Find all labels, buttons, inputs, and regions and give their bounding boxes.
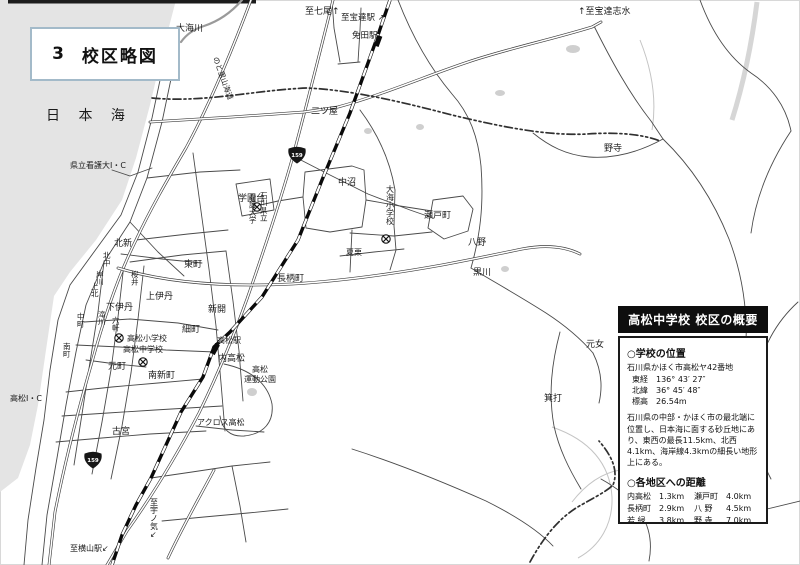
road [111,266,144,479]
distance-value: 4.5km [726,503,759,515]
map-label-minouchi: 箕打 [544,392,562,404]
map-label-to-unoke: 至宇ノ気↙ [150,498,158,539]
map-label-hosomachi: 細町 [182,323,200,335]
map-label-motome: 元女 [586,338,604,350]
distance-name: 若 緑 [627,515,657,524]
map-label-furumiya: 古宮 [112,425,130,437]
terrain-band [732,2,757,120]
omigawa-river [181,0,242,42]
map-label-shimoidan: 下伊丹 [106,301,133,313]
map-label-route-noto-satoyama-kaido: のと里山海道 [211,55,236,101]
distance-value: 1.3km [659,491,692,503]
road [162,509,288,521]
coordinate-row: 東経136° 43′ 27″ [627,375,759,386]
scan-artifact [8,0,256,4]
map-label-takamatsu-elementary: 高松小学校 [127,333,167,343]
map-label-minamishinmachi: 南新町 [148,369,175,381]
map-label-to-hodatsu-station: 至宝達駅 ↗ [341,12,385,23]
map-label-kamiidan: 上伊丹 [146,290,173,302]
map-label-takamatsu-junior-high: 高松中学校 [123,344,163,354]
road [471,268,593,353]
map-label-takigawa: 滝川 [98,309,106,327]
road [130,222,184,276]
info-box-header: 高松中学校 校区の概要 [618,306,768,333]
location-section-title: ○学校の位置 [627,345,759,360]
map-label-kitanaka: 北中 [103,251,111,268]
distance-name: 野 寺 [694,515,724,524]
terrain-contour [640,40,654,130]
distance-value: 7.0km [726,515,759,524]
distance-table: 内高松1.3km瀬戸町4.0km長柄町2.9km八 野4.5km若 緑3.8km… [627,491,759,524]
map-title-number: 3 [52,44,66,64]
school-address: 石川県かほく市高松ヤ42番地 [627,362,759,373]
map-label-shinkai: 新開 [208,303,226,315]
road [136,230,228,240]
road [398,0,482,268]
map-label-setomachi: 瀬戸町 [424,209,451,221]
road [232,466,246,542]
map-label-across-takamatsu: アクロス高松 [197,417,245,427]
road [350,232,432,236]
distance-name: 長柄町 [627,503,657,515]
map-label-rokken: 六軒 [112,315,120,333]
route-159-shield-number: 159 [291,153,303,159]
map-label-takamatsu-sports-park-1: 高松 [252,364,268,374]
road [338,62,360,64]
terrain-patch [247,388,257,396]
coordinate-list: 東経136° 43′ 27″北緯36° 45′ 48″標高26.54m [627,375,759,407]
map-label-to-hodatsushimizu: ↑至宝達志水 [578,5,631,17]
map-label-higashimachi: 東町 [184,258,202,270]
road [352,449,553,546]
map-label-kango-daigaku: 看護大学 [249,193,257,225]
map-label-nakanuma: 中沼 [338,176,356,188]
map-label-takamatsu-sports-park-2: 運動公園 [244,375,276,384]
map-label-takamatsu-station: 高松駅 [217,335,241,345]
map-title-text: 校区略図 [82,42,158,67]
major-road [168,470,214,558]
map-label-menden-station: 免田駅 [352,30,378,41]
map-label-river-omigawa: 大海川 [176,22,203,34]
map-label-hachino: 八野 [468,237,486,248]
info-box-body: ○学校の位置 石川県かほく市高松ヤ42番地 東経136° 43′ 27″北緯36… [618,336,768,524]
school-info-box: 高松中学校 校区の概要 ○学校の位置 石川県かほく市高松ヤ42番地 東経136°… [618,306,768,524]
map-label-kishikawa: 岸川 [96,270,104,287]
distance-name: 瀬戸町 [694,491,724,503]
map-label-uchitakamatsu: 内高松 [218,352,245,364]
map-label-kitashin: 北新 [114,237,132,249]
distance-section-title: ○各地区への距離 [627,474,759,489]
terrain-patch [416,124,424,130]
map-label-nakamachi: 中町 [77,311,85,329]
map-label-to-nanao: 至七尾↑ [305,6,340,17]
coordinate-row: 標高26.54m [627,397,759,408]
road [551,332,581,489]
terrain-patch [495,90,505,96]
map-label-omi-elementary: 大海小学校 [386,184,394,226]
map-label-kurokawa: 黒川 [473,267,491,278]
map-label-motomachi: 元町 [108,362,126,372]
route-159-shield-number: 159 [87,458,99,464]
road [593,353,601,403]
road [360,110,395,190]
page: 159159日 本 海大海川のと里山海道至七尾↑至宝達駅 ↗免田駅↑至宝達志水二… [0,0,800,565]
map-label-nagaramachi: 長柄町 [277,272,304,284]
school-description: 石川県の中部・かほく市の最北端に位置し、日本海に面する砂丘地にあり、東西の最長1… [627,412,759,468]
distance-name: 内高松 [627,491,657,503]
terrain-patch [364,128,372,134]
terrain-patch [566,45,580,53]
distance-value: 3.8km [659,515,692,524]
map-label-sea-nihonkai: 日 本 海 [46,108,132,124]
distance-value: 4.0km [726,491,759,503]
map-label-sakurai: 桜井 [131,269,139,287]
terrain-patch [501,266,509,272]
map-label-nodera: 野寺 [604,143,622,154]
map-label-natsuguri: 夏栗 [346,248,362,257]
map-label-kenritsu-kango-dai-ic: 県立看護大I・C [70,160,126,170]
road [303,166,366,232]
distance-name: 八 野 [694,503,724,515]
distance-value: 2.9km [659,503,692,515]
road [293,156,433,218]
map-label-futatsuya: 二ツ屋 [311,106,338,117]
coordinate-row: 北緯36° 45′ 48″ [627,386,759,397]
map-label-takamatsu-ic: 高松I・C [10,393,42,403]
map-title-box: 3 校区略図 [30,27,180,81]
map-label-to-yokoyama-station: 至横山駅↙ [70,543,109,553]
road [751,131,791,233]
map-label-ishikawa-kenritsu: 石川県立 [260,191,268,223]
map-label-minamimachi: 南町 [63,341,71,359]
road [147,170,240,178]
